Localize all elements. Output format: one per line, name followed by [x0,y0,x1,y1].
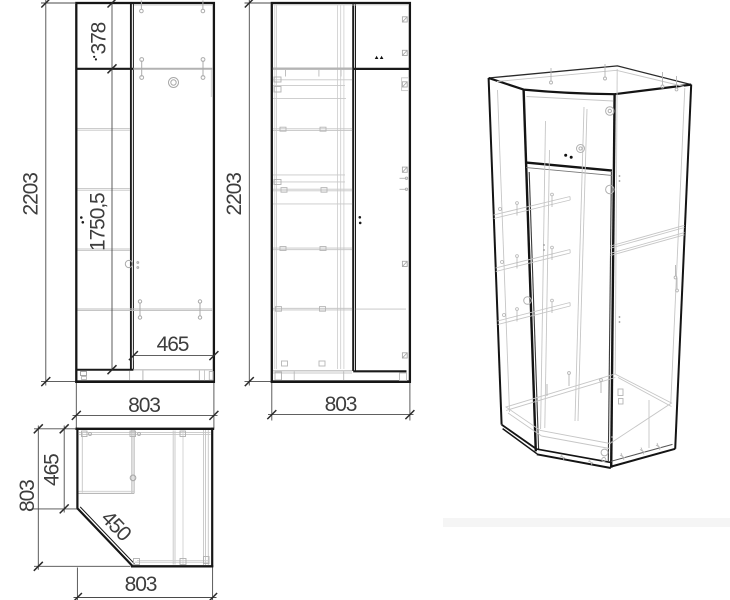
svg-text:2203: 2203 [20,173,43,216]
svg-text:803: 803 [128,394,160,417]
svg-text:2203: 2203 [223,173,246,216]
svg-text:803: 803 [125,573,157,596]
svg-text:803: 803 [16,480,39,512]
svg-text:1750,5: 1750,5 [87,193,110,251]
svg-text:803: 803 [325,393,357,416]
svg-text:465: 465 [157,333,189,356]
svg-text:378: 378 [88,22,111,54]
svg-text:465: 465 [41,454,64,486]
